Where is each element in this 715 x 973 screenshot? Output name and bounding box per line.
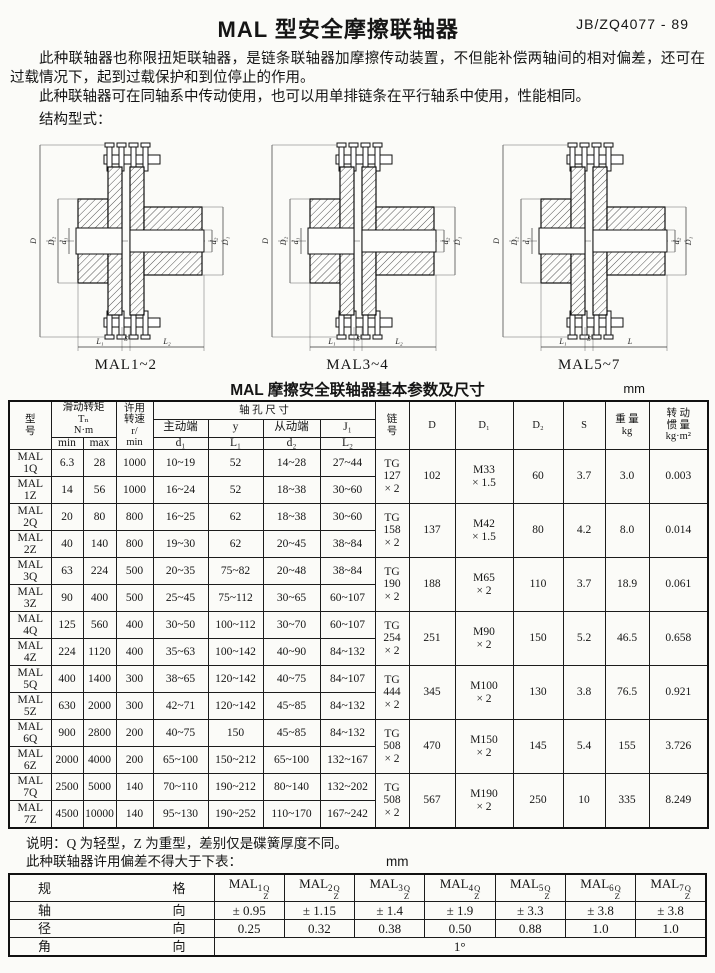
value-cell: 14~28 <box>263 450 320 477</box>
table-row: MAL 1Q6.328100010~195214~2827~44TG 127 ×… <box>9 450 708 477</box>
value-cell: 120~142 <box>208 693 263 720</box>
svg-text:D₁: D₁ <box>684 237 693 247</box>
note-type-explanation: 说明：Q 为轻型，Z 为重型，差别仅是碟簧厚度不同。 <box>26 835 703 853</box>
tolerance-row-label: 径 向 <box>9 920 214 938</box>
value-cell: 140 <box>83 531 116 558</box>
weight-cell: 18.9 <box>605 558 649 612</box>
tolerance-value: ± 1.9 <box>425 902 495 920</box>
value-cell: 35~63 <box>153 639 208 666</box>
value-cell: 1000 <box>116 477 153 504</box>
value-cell: 224 <box>83 558 116 585</box>
svg-text:d₁: d₁ <box>291 237 300 244</box>
D2-cell: 80 <box>513 504 563 558</box>
page-title: MAL 型安全摩擦联轴器 <box>218 12 459 44</box>
value-cell: 62 <box>208 531 263 558</box>
structure-type-label: 结构型式： <box>10 108 705 129</box>
inertia-cell: 0.061 <box>649 558 708 612</box>
tolerance-value: 0.88 <box>495 920 565 938</box>
tolerance-value: 0.38 <box>355 920 425 938</box>
figure-mal3-4: D D₂ d₁ d₂ D₁ L₁ S L₂ MAL3~4 <box>242 133 474 374</box>
value-cell: 19~30 <box>153 531 208 558</box>
value-cell: 16~25 <box>153 504 208 531</box>
value-cell: 20~48 <box>263 558 320 585</box>
D-cell: 137 <box>409 504 455 558</box>
spec-header: MAL3QZ <box>355 874 425 902</box>
value-cell: 42~71 <box>153 693 208 720</box>
value-cell: 30~60 <box>320 504 375 531</box>
standard-number: JB/ZQ4077 - 89 <box>576 16 689 32</box>
table-row: MAL 6Q900280020040~7515045~8584~132TG 50… <box>9 720 708 747</box>
inertia-cell: 0.921 <box>649 666 708 720</box>
value-cell: 4000 <box>83 747 116 774</box>
value-cell: 1120 <box>83 639 116 666</box>
tolerance-value: ± 1.15 <box>284 902 354 920</box>
value-cell: 400 <box>116 639 153 666</box>
D1-cell: M65 × 2 <box>455 558 513 612</box>
document-page: MAL 型安全摩擦联轴器 JB/ZQ4077 - 89 此种联轴器也称限扭矩联轴… <box>0 0 715 961</box>
value-cell: 84~132 <box>320 693 375 720</box>
figure-caption: MAL5~7 <box>473 357 705 374</box>
spec-header: MAL5QZ <box>495 874 565 902</box>
D2-cell: 110 <box>513 558 563 612</box>
table-row: MAL 4Q12556040030~50100~11230~7060~107TG… <box>9 612 708 639</box>
value-cell: 150~212 <box>208 747 263 774</box>
col-header-chain: 链 号 <box>375 401 409 450</box>
tolerance-value: ± 3.8 <box>565 902 635 920</box>
value-cell: 630 <box>51 693 83 720</box>
coupling-section-svg: D D₂ d₁ d₂ D₁ L₁ S L <box>477 133 701 355</box>
intro-paragraph-2: 此种联轴器可在同轴系中传动使用，也可以用单排链条在平行轴系中使用，性能相同。 <box>10 88 705 107</box>
D2-cell: 130 <box>513 666 563 720</box>
D2-cell: 60 <box>513 450 563 504</box>
value-cell: 190~212 <box>208 774 263 801</box>
value-cell: 4500 <box>51 801 83 829</box>
table-row: MAL 7Q2500500014070~110190~21280~140132~… <box>9 774 708 801</box>
D-cell: 251 <box>409 612 455 666</box>
col-header-d1: d₁ <box>153 437 208 450</box>
col-header-inertia: 转 动 惯 量 kg·m² <box>649 401 708 450</box>
table-row: MAL 5Q400140030038~65120~14240~7584~107T… <box>9 666 708 693</box>
value-cell: 45~85 <box>263 693 320 720</box>
value-cell: 800 <box>116 504 153 531</box>
S-cell: 3.8 <box>563 666 605 720</box>
value-cell: 10~19 <box>153 450 208 477</box>
value-cell: 75~112 <box>208 585 263 612</box>
value-cell: 20~35 <box>153 558 208 585</box>
coupling-section-svg: D D₂ d₁ d₂ D₁ L₁ S L₂ <box>14 133 238 355</box>
value-cell: 38~84 <box>320 531 375 558</box>
model-cell: MAL 3Q <box>9 558 51 585</box>
svg-text:D₂: D₂ <box>510 237 519 247</box>
col-header-D2: D₂ <box>513 401 563 450</box>
col-header-d2: d₂ <box>263 437 320 450</box>
weight-cell: 3.0 <box>605 450 649 504</box>
value-cell: 140 <box>116 774 153 801</box>
value-cell: 65~100 <box>153 747 208 774</box>
model-cell: MAL 4Z <box>9 639 51 666</box>
svg-text:D₂: D₂ <box>279 237 288 247</box>
col-header-max: max <box>83 437 116 450</box>
D-cell: 102 <box>409 450 455 504</box>
model-cell: MAL 4Q <box>9 612 51 639</box>
svg-text:S: S <box>587 335 591 343</box>
tolerance-row-label: 角 向 <box>9 938 214 957</box>
D1-cell: M90 × 2 <box>455 612 513 666</box>
value-cell: 800 <box>116 531 153 558</box>
svg-text:d₂: d₂ <box>672 237 681 244</box>
spec-header: MAL4QZ <box>425 874 495 902</box>
value-cell: 30~70 <box>263 612 320 639</box>
svg-text:L₂: L₂ <box>394 337 402 346</box>
table-row: MAL 2Q208080016~256218~3830~60TG 158 × 2… <box>9 504 708 531</box>
svg-text:D₁: D₁ <box>221 237 230 247</box>
tolerance-value: 0.50 <box>425 920 495 938</box>
model-cell: MAL 2Z <box>9 531 51 558</box>
value-cell: 60~107 <box>320 612 375 639</box>
model-cell: MAL 2Q <box>9 504 51 531</box>
value-cell: 70~110 <box>153 774 208 801</box>
D-cell: 188 <box>409 558 455 612</box>
D2-cell: 145 <box>513 720 563 774</box>
tolerance-value: ± 0.95 <box>214 902 284 920</box>
D-cell: 567 <box>409 774 455 829</box>
chain-no-cell: TG 127 × 2 <box>375 450 409 504</box>
chain-no-cell: TG 190 × 2 <box>375 558 409 612</box>
value-cell: 30~65 <box>263 585 320 612</box>
svg-text:L: L <box>627 337 633 346</box>
value-cell: 150 <box>208 720 263 747</box>
chain-no-cell: TG 508 × 2 <box>375 774 409 829</box>
value-cell: 95~130 <box>153 801 208 829</box>
S-cell: 3.7 <box>563 558 605 612</box>
S-cell: 4.2 <box>563 504 605 558</box>
value-cell: 300 <box>116 666 153 693</box>
value-cell: 20 <box>51 504 83 531</box>
value-cell: 27~44 <box>320 450 375 477</box>
value-cell: 52 <box>208 450 263 477</box>
svg-text:D: D <box>29 238 38 245</box>
svg-text:d₁: d₁ <box>59 237 68 244</box>
note-tolerance-row: 此种联轴器许用偏差不得大于下表： mm <box>26 853 703 871</box>
value-cell: 18~38 <box>263 504 320 531</box>
svg-text:L₁: L₁ <box>559 337 567 346</box>
col-header-driven-end: 从动端 <box>263 419 320 437</box>
value-cell: 80 <box>83 504 116 531</box>
chain-no-cell: TG 158 × 2 <box>375 504 409 558</box>
value-cell: 62 <box>208 504 263 531</box>
spec-header: MAL1QZ <box>214 874 284 902</box>
value-cell: 30~50 <box>153 612 208 639</box>
spec-header: MAL2QZ <box>284 874 354 902</box>
main-table-unit: mm <box>623 381 645 396</box>
value-cell: 190~252 <box>208 801 263 829</box>
D1-cell: M42 × 1.5 <box>455 504 513 558</box>
model-cell: MAL 5Q <box>9 666 51 693</box>
value-cell: 28 <box>83 450 116 477</box>
value-cell: 224 <box>51 639 83 666</box>
value-cell: 300 <box>116 693 153 720</box>
svg-text:D₁: D₁ <box>453 237 462 247</box>
col-header-D: D <box>409 401 455 450</box>
value-cell: 40~75 <box>153 720 208 747</box>
value-cell: 10000 <box>83 801 116 829</box>
value-cell: 38~65 <box>153 666 208 693</box>
svg-text:d₂: d₂ <box>441 237 450 244</box>
D1-cell: M190 × 2 <box>455 774 513 829</box>
value-cell: 84~132 <box>320 720 375 747</box>
col-header-model: 型 号 <box>9 401 51 450</box>
svg-text:D: D <box>492 238 501 245</box>
value-cell: 400 <box>116 612 153 639</box>
value-cell: 5000 <box>83 774 116 801</box>
value-cell: 500 <box>116 558 153 585</box>
value-cell: 140 <box>116 801 153 829</box>
D2-cell: 250 <box>513 774 563 829</box>
notes-block: 说明：Q 为轻型，Z 为重型，差别仅是碟簧厚度不同。 此种联轴器许用偏差不得大于… <box>12 835 703 871</box>
table-row: MAL 3Q6322450020~3575~8220~4838~84TG 190… <box>9 558 708 585</box>
model-cell: MAL 7Z <box>9 801 51 829</box>
model-cell: MAL 6Q <box>9 720 51 747</box>
value-cell: 400 <box>51 666 83 693</box>
model-cell: MAL 6Z <box>9 747 51 774</box>
tolerance-table-body: 轴 向± 0.95± 1.15± 1.4± 1.9± 3.3± 3.8± 3.8… <box>9 902 706 957</box>
col-header-torque: 滑动转矩 Tₙ N·m <box>51 401 116 437</box>
tolerance-table-head: 规 格MAL1QZMAL2QZMAL3QZMAL4QZMAL5QZMAL6QZM… <box>9 874 706 902</box>
S-cell: 10 <box>563 774 605 829</box>
weight-cell: 335 <box>605 774 649 829</box>
col-header-driving-end: 主动端 <box>153 419 208 437</box>
value-cell: 120~142 <box>208 666 263 693</box>
figure-mal5-7: D D₂ d₁ d₂ D₁ L₁ S L MAL5~7 <box>473 133 705 374</box>
value-cell: 100~112 <box>208 612 263 639</box>
value-cell: 80~140 <box>263 774 320 801</box>
model-cell: MAL 1Q <box>9 450 51 477</box>
value-cell: 25~45 <box>153 585 208 612</box>
tolerance-value: ± 3.8 <box>636 902 706 920</box>
value-cell: 2800 <box>83 720 116 747</box>
value-cell: 65~100 <box>263 747 320 774</box>
model-cell: MAL 1Z <box>9 477 51 504</box>
D1-cell: M33 × 1.5 <box>455 450 513 504</box>
value-cell: 84~107 <box>320 666 375 693</box>
value-cell: 2000 <box>83 693 116 720</box>
figure-caption: MAL1~2 <box>10 357 242 374</box>
model-cell: MAL 7Q <box>9 774 51 801</box>
svg-text:L₂: L₂ <box>162 337 170 346</box>
value-cell: 1000 <box>116 450 153 477</box>
coupling-figures: D D₂ d₁ d₂ D₁ L₁ S L₂ MAL1~2 <box>10 133 705 374</box>
S-cell: 3.7 <box>563 450 605 504</box>
tolerance-value: 0.25 <box>214 920 284 938</box>
svg-text:L₁: L₁ <box>327 337 335 346</box>
tolerance-value: 1.0 <box>636 920 706 938</box>
col-header-J1: J₁ <box>320 419 375 437</box>
svg-text:d₁: d₁ <box>522 237 531 244</box>
tolerance-table: 规 格MAL1QZMAL2QZMAL3QZMAL4QZMAL5QZMAL6QZM… <box>8 873 707 957</box>
value-cell: 63 <box>51 558 83 585</box>
intro-text: 此种联轴器也称限扭矩联轴器，是链条联轴器加摩擦传动装置，不但能补偿两轴间的相对偏… <box>10 50 705 107</box>
parameters-table-body: MAL 1Q6.328100010~195214~2827~44TG 127 ×… <box>9 450 708 829</box>
inertia-cell: 0.658 <box>649 612 708 666</box>
coupling-section-svg: D D₂ d₁ d₂ D₁ L₁ S L₂ <box>246 133 470 355</box>
note-tolerance: 此种联轴器许用偏差不得大于下表： <box>26 854 242 869</box>
spec-header: MAL6QZ <box>565 874 635 902</box>
D1-cell: M150 × 2 <box>455 720 513 774</box>
col-header-L1: L₁ <box>208 437 263 450</box>
spec-header: MAL7QZ <box>636 874 706 902</box>
value-cell: 132~202 <box>320 774 375 801</box>
value-cell: 110~170 <box>263 801 320 829</box>
value-cell: 18~38 <box>263 477 320 504</box>
value-cell: 900 <box>51 720 83 747</box>
D2-cell: 150 <box>513 612 563 666</box>
value-cell: 84~132 <box>320 639 375 666</box>
col-header-S: S <box>563 401 605 450</box>
main-table-title: MAL 摩擦安全联轴器基本参数及尺寸 <box>230 378 485 400</box>
value-cell: 100~142 <box>208 639 263 666</box>
value-cell: 52 <box>208 477 263 504</box>
parameters-table-head: 型 号滑动转矩 Tₙ N·m许用 转速 r/ min轴 孔 尺 寸链 号DD₁D… <box>9 401 708 450</box>
value-cell: 40~90 <box>263 639 320 666</box>
value-cell: 56 <box>83 477 116 504</box>
chain-no-cell: TG 508 × 2 <box>375 720 409 774</box>
coupling-drawing: D D₂ d₁ d₂ D₁ L₁ S L₂ <box>10 133 242 355</box>
svg-text:S: S <box>124 335 128 343</box>
col-header-weight: 重 量 kg <box>605 401 649 450</box>
weight-cell: 46.5 <box>605 612 649 666</box>
value-cell: 132~167 <box>320 747 375 774</box>
value-cell: 90 <box>51 585 83 612</box>
tolerance-value: 1.0 <box>565 920 635 938</box>
col-header-speed: 许用 转速 r/ min <box>116 401 153 450</box>
weight-cell: 155 <box>605 720 649 774</box>
table-row: 轴 向± 0.95± 1.15± 1.4± 1.9± 3.3± 3.8± 3.8 <box>9 902 706 920</box>
col-header-y: y <box>208 419 263 437</box>
coupling-drawing: D D₂ d₁ d₂ D₁ L₁ S L <box>473 133 705 355</box>
figure-mal1-2: D D₂ d₁ d₂ D₁ L₁ S L₂ MAL1~2 <box>10 133 242 374</box>
tolerance-value: 1° <box>214 938 706 957</box>
tolerance-value: 0.32 <box>284 920 354 938</box>
value-cell: 30~60 <box>320 477 375 504</box>
document-header: MAL 型安全摩擦联轴器 JB/ZQ4077 - 89 <box>8 12 707 46</box>
value-cell: 500 <box>116 585 153 612</box>
col-header-L2: L₂ <box>320 437 375 450</box>
col-header-min: min <box>51 437 83 450</box>
value-cell: 16~24 <box>153 477 208 504</box>
value-cell: 200 <box>116 720 153 747</box>
svg-text:D: D <box>261 238 270 245</box>
value-cell: 2500 <box>51 774 83 801</box>
value-cell: 6.3 <box>51 450 83 477</box>
value-cell: 60~107 <box>320 585 375 612</box>
tolerance-table-unit: mm <box>386 853 409 871</box>
value-cell: 40 <box>51 531 83 558</box>
model-cell: MAL 5Z <box>9 693 51 720</box>
figure-caption: MAL3~4 <box>242 357 474 374</box>
value-cell: 38~84 <box>320 558 375 585</box>
model-cell: MAL 3Z <box>9 585 51 612</box>
value-cell: 125 <box>51 612 83 639</box>
table-row: 径 向0.250.320.380.500.881.01.0 <box>9 920 706 938</box>
inertia-cell: 3.726 <box>649 720 708 774</box>
weight-cell: 76.5 <box>605 666 649 720</box>
S-cell: 5.4 <box>563 720 605 774</box>
intro-paragraph-1: 此种联轴器也称限扭矩联轴器，是链条联轴器加摩擦传动装置，不但能补偿两轴间的相对偏… <box>10 50 705 88</box>
D-cell: 345 <box>409 666 455 720</box>
value-cell: 75~82 <box>208 558 263 585</box>
D1-cell: M100 × 2 <box>455 666 513 720</box>
value-cell: 200 <box>116 747 153 774</box>
tolerance-value: ± 3.3 <box>495 902 565 920</box>
main-table-title-row: MAL 摩擦安全联轴器基本参数及尺寸 mm <box>8 378 707 400</box>
value-cell: 400 <box>83 585 116 612</box>
inertia-cell: 0.003 <box>649 450 708 504</box>
col-header-D1: D₁ <box>455 401 513 450</box>
tolerance-value: ± 1.4 <box>355 902 425 920</box>
coupling-drawing: D D₂ d₁ d₂ D₁ L₁ S L₂ <box>242 133 474 355</box>
col-header-bore: 轴 孔 尺 寸 <box>153 401 375 419</box>
value-cell: 14 <box>51 477 83 504</box>
chain-no-cell: TG 444 × 2 <box>375 666 409 720</box>
value-cell: 2000 <box>51 747 83 774</box>
svg-text:d₂: d₂ <box>209 237 218 244</box>
table-row: 角 向1° <box>9 938 706 957</box>
tolerance-row-label: 轴 向 <box>9 902 214 920</box>
svg-text:D₂: D₂ <box>47 237 56 247</box>
chain-no-cell: TG 254 × 2 <box>375 612 409 666</box>
weight-cell: 8.0 <box>605 504 649 558</box>
value-cell: 1400 <box>83 666 116 693</box>
inertia-cell: 8.249 <box>649 774 708 829</box>
value-cell: 167~242 <box>320 801 375 829</box>
value-cell: 20~45 <box>263 531 320 558</box>
tolerance-corner-label: 规 格 <box>9 874 214 902</box>
parameters-table: 型 号滑动转矩 Tₙ N·m许用 转速 r/ min轴 孔 尺 寸链 号DD₁D… <box>8 400 709 829</box>
value-cell: 40~75 <box>263 666 320 693</box>
inertia-cell: 0.014 <box>649 504 708 558</box>
svg-text:S: S <box>356 335 360 343</box>
value-cell: 45~85 <box>263 720 320 747</box>
value-cell: 560 <box>83 612 116 639</box>
svg-text:L₁: L₁ <box>95 337 103 346</box>
S-cell: 5.2 <box>563 612 605 666</box>
D-cell: 470 <box>409 720 455 774</box>
